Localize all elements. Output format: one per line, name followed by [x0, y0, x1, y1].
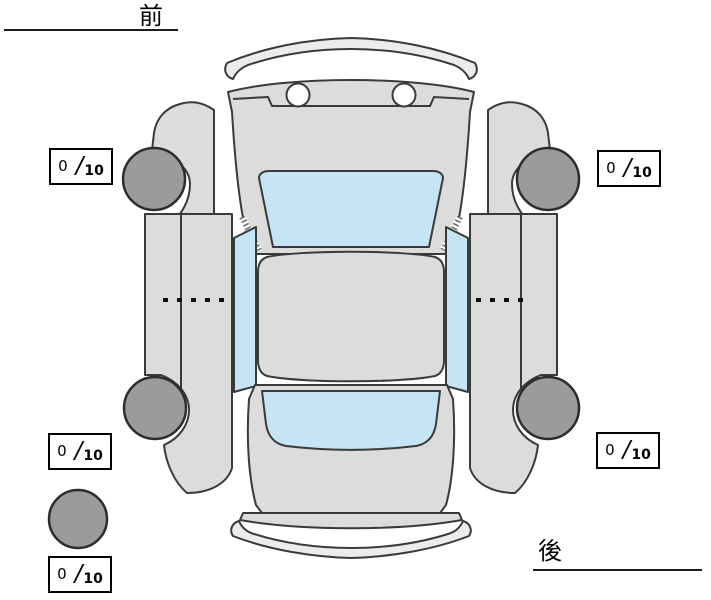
score-spare-slash: /	[75, 564, 83, 585]
score-spare[interactable]: 0/10	[48, 556, 112, 593]
rear-label: 後	[538, 539, 563, 563]
side-panel-right	[470, 214, 557, 493]
car-inspection-diagram: 前	[0, 0, 711, 600]
rear-bumper-band	[240, 513, 462, 528]
tire-rear-left	[124, 377, 186, 439]
score-rear-right-max: 10	[631, 447, 650, 463]
side-window-left	[234, 227, 256, 392]
score-rear-right[interactable]: 0/10	[596, 432, 660, 469]
tire-front-left	[123, 148, 185, 210]
score-front-right[interactable]: 0/10	[597, 150, 661, 187]
side-panel-left	[145, 214, 232, 493]
tire-front-right	[517, 148, 579, 210]
score-rear-right-slash: /	[623, 440, 631, 461]
windshield	[259, 171, 443, 247]
score-front-left-slash: /	[76, 156, 84, 177]
score-rear-left-value: 0	[57, 442, 67, 460]
side-window-right	[446, 227, 468, 392]
score-spare-value: 0	[57, 565, 67, 583]
score-front-right-slash: /	[624, 158, 632, 179]
front-bumper	[225, 38, 477, 79]
tire-rear-right	[517, 377, 579, 439]
car-top-view-svg	[0, 0, 711, 600]
score-rear-right-value: 0	[605, 441, 615, 459]
score-front-right-max: 10	[632, 165, 651, 181]
score-front-left-value: 0	[58, 157, 68, 175]
score-spare-max: 10	[83, 571, 102, 587]
roof	[258, 252, 444, 382]
score-front-right-value: 0	[606, 159, 616, 177]
headlight-right	[393, 84, 416, 107]
score-rear-left-slash: /	[75, 441, 83, 462]
rear-underline	[533, 569, 702, 571]
score-rear-left[interactable]: 0/10	[48, 433, 112, 470]
score-front-left-max: 10	[84, 163, 103, 179]
rear-window	[262, 391, 440, 450]
spare-tire	[49, 490, 107, 548]
score-front-left[interactable]: 0/10	[49, 148, 113, 185]
headlight-left	[287, 84, 310, 107]
score-rear-left-max: 10	[83, 448, 102, 464]
